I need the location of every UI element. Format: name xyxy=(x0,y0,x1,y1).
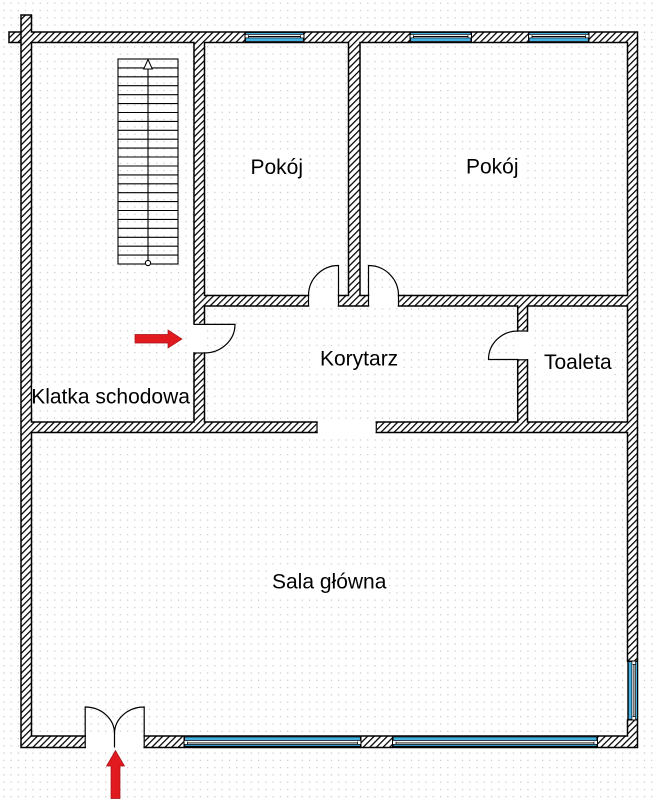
svg-text:Pokój: Pokój xyxy=(251,156,304,179)
svg-text:Sala główna: Sala główna xyxy=(272,571,387,594)
svg-text:Korytarz: Korytarz xyxy=(320,348,398,371)
svg-text:Pokój: Pokój xyxy=(466,156,519,179)
svg-text:Toaleta: Toaleta xyxy=(544,351,612,374)
svg-text:Klatka schodowa: Klatka schodowa xyxy=(31,386,190,409)
